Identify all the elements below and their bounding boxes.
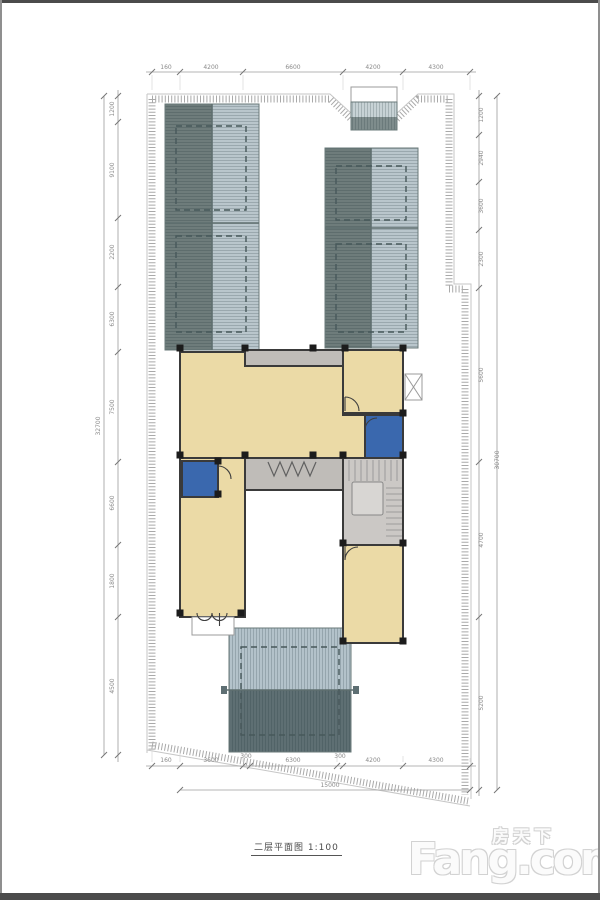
roof-top-right bbox=[325, 148, 418, 348]
floorplan-screenshot: 160 4200 6600 4200 4300 160 3600 300 630… bbox=[0, 0, 600, 900]
svg-text:5600: 5600 bbox=[478, 367, 485, 382]
svg-text:1200: 1200 bbox=[478, 107, 485, 122]
svg-text:6600: 6600 bbox=[285, 64, 300, 71]
watermark-en-text: Fang.com bbox=[408, 834, 600, 885]
svg-text:300: 300 bbox=[334, 753, 346, 760]
svg-text:160: 160 bbox=[160, 64, 172, 71]
stair-landing bbox=[352, 482, 383, 515]
svg-text:6600: 6600 bbox=[109, 495, 116, 510]
svg-text:9100: 9100 bbox=[109, 162, 116, 177]
svg-text:3600: 3600 bbox=[478, 198, 485, 213]
svg-text:7500: 7500 bbox=[109, 399, 116, 414]
svg-text:4700: 4700 bbox=[478, 532, 485, 547]
svg-text:15000: 15000 bbox=[320, 782, 339, 789]
entry-canopy bbox=[351, 87, 397, 130]
room-right-top bbox=[343, 350, 403, 413]
frame-border-left bbox=[0, 0, 2, 900]
frame-border-bottom bbox=[0, 893, 600, 900]
bay-window bbox=[405, 374, 422, 400]
bathroom-left bbox=[182, 461, 218, 497]
dimension-chain-right: 1200 2940 3600 2300 5600 4700 5200 30700 bbox=[476, 90, 501, 796]
roof-top-left bbox=[165, 104, 259, 350]
svg-text:4200: 4200 bbox=[365, 757, 380, 764]
svg-text:1800: 1800 bbox=[109, 573, 116, 588]
svg-text:6300: 6300 bbox=[109, 311, 116, 326]
svg-text:4300: 4300 bbox=[428, 64, 443, 71]
svg-text:160: 160 bbox=[160, 757, 172, 764]
svg-text:2300: 2300 bbox=[478, 251, 485, 266]
svg-text:4200: 4200 bbox=[203, 64, 218, 71]
dimension-chain-left: 1200 9100 2200 6300 7500 6600 1800 4500 … bbox=[95, 90, 121, 762]
watermark-logo: 房天下 Fang.com bbox=[406, 824, 600, 886]
svg-text:300: 300 bbox=[240, 753, 252, 760]
room-right-bottom bbox=[343, 545, 403, 643]
corridor-mid bbox=[245, 458, 343, 490]
svg-text:2200: 2200 bbox=[109, 244, 116, 259]
svg-text:2940: 2940 bbox=[478, 150, 485, 165]
bathroom-right bbox=[365, 415, 403, 458]
living-room bbox=[180, 352, 365, 458]
frame-border-top bbox=[0, 0, 600, 3]
svg-text:30700: 30700 bbox=[494, 450, 501, 469]
svg-text:4300: 4300 bbox=[428, 757, 443, 764]
svg-text:1200: 1200 bbox=[109, 101, 116, 116]
roof-bottom bbox=[221, 628, 359, 752]
svg-text:4500: 4500 bbox=[109, 678, 116, 693]
floorplan-drawing: 160 4200 6600 4200 4300 160 3600 300 630… bbox=[0, 0, 600, 900]
svg-text:3600: 3600 bbox=[203, 757, 218, 764]
svg-text:4200: 4200 bbox=[365, 64, 380, 71]
svg-text:6300: 6300 bbox=[285, 757, 300, 764]
dimension-chain-bottom: 160 3600 300 6300 300 4200 4300 15000 bbox=[146, 750, 476, 793]
svg-text:32700: 32700 bbox=[95, 416, 102, 435]
corridor-top bbox=[245, 350, 343, 366]
svg-text:5200: 5200 bbox=[478, 695, 485, 710]
drawing-title: 二层平面图 1:100 bbox=[251, 840, 342, 856]
dimension-chain-top: 160 4200 6600 4200 4300 bbox=[146, 64, 476, 90]
